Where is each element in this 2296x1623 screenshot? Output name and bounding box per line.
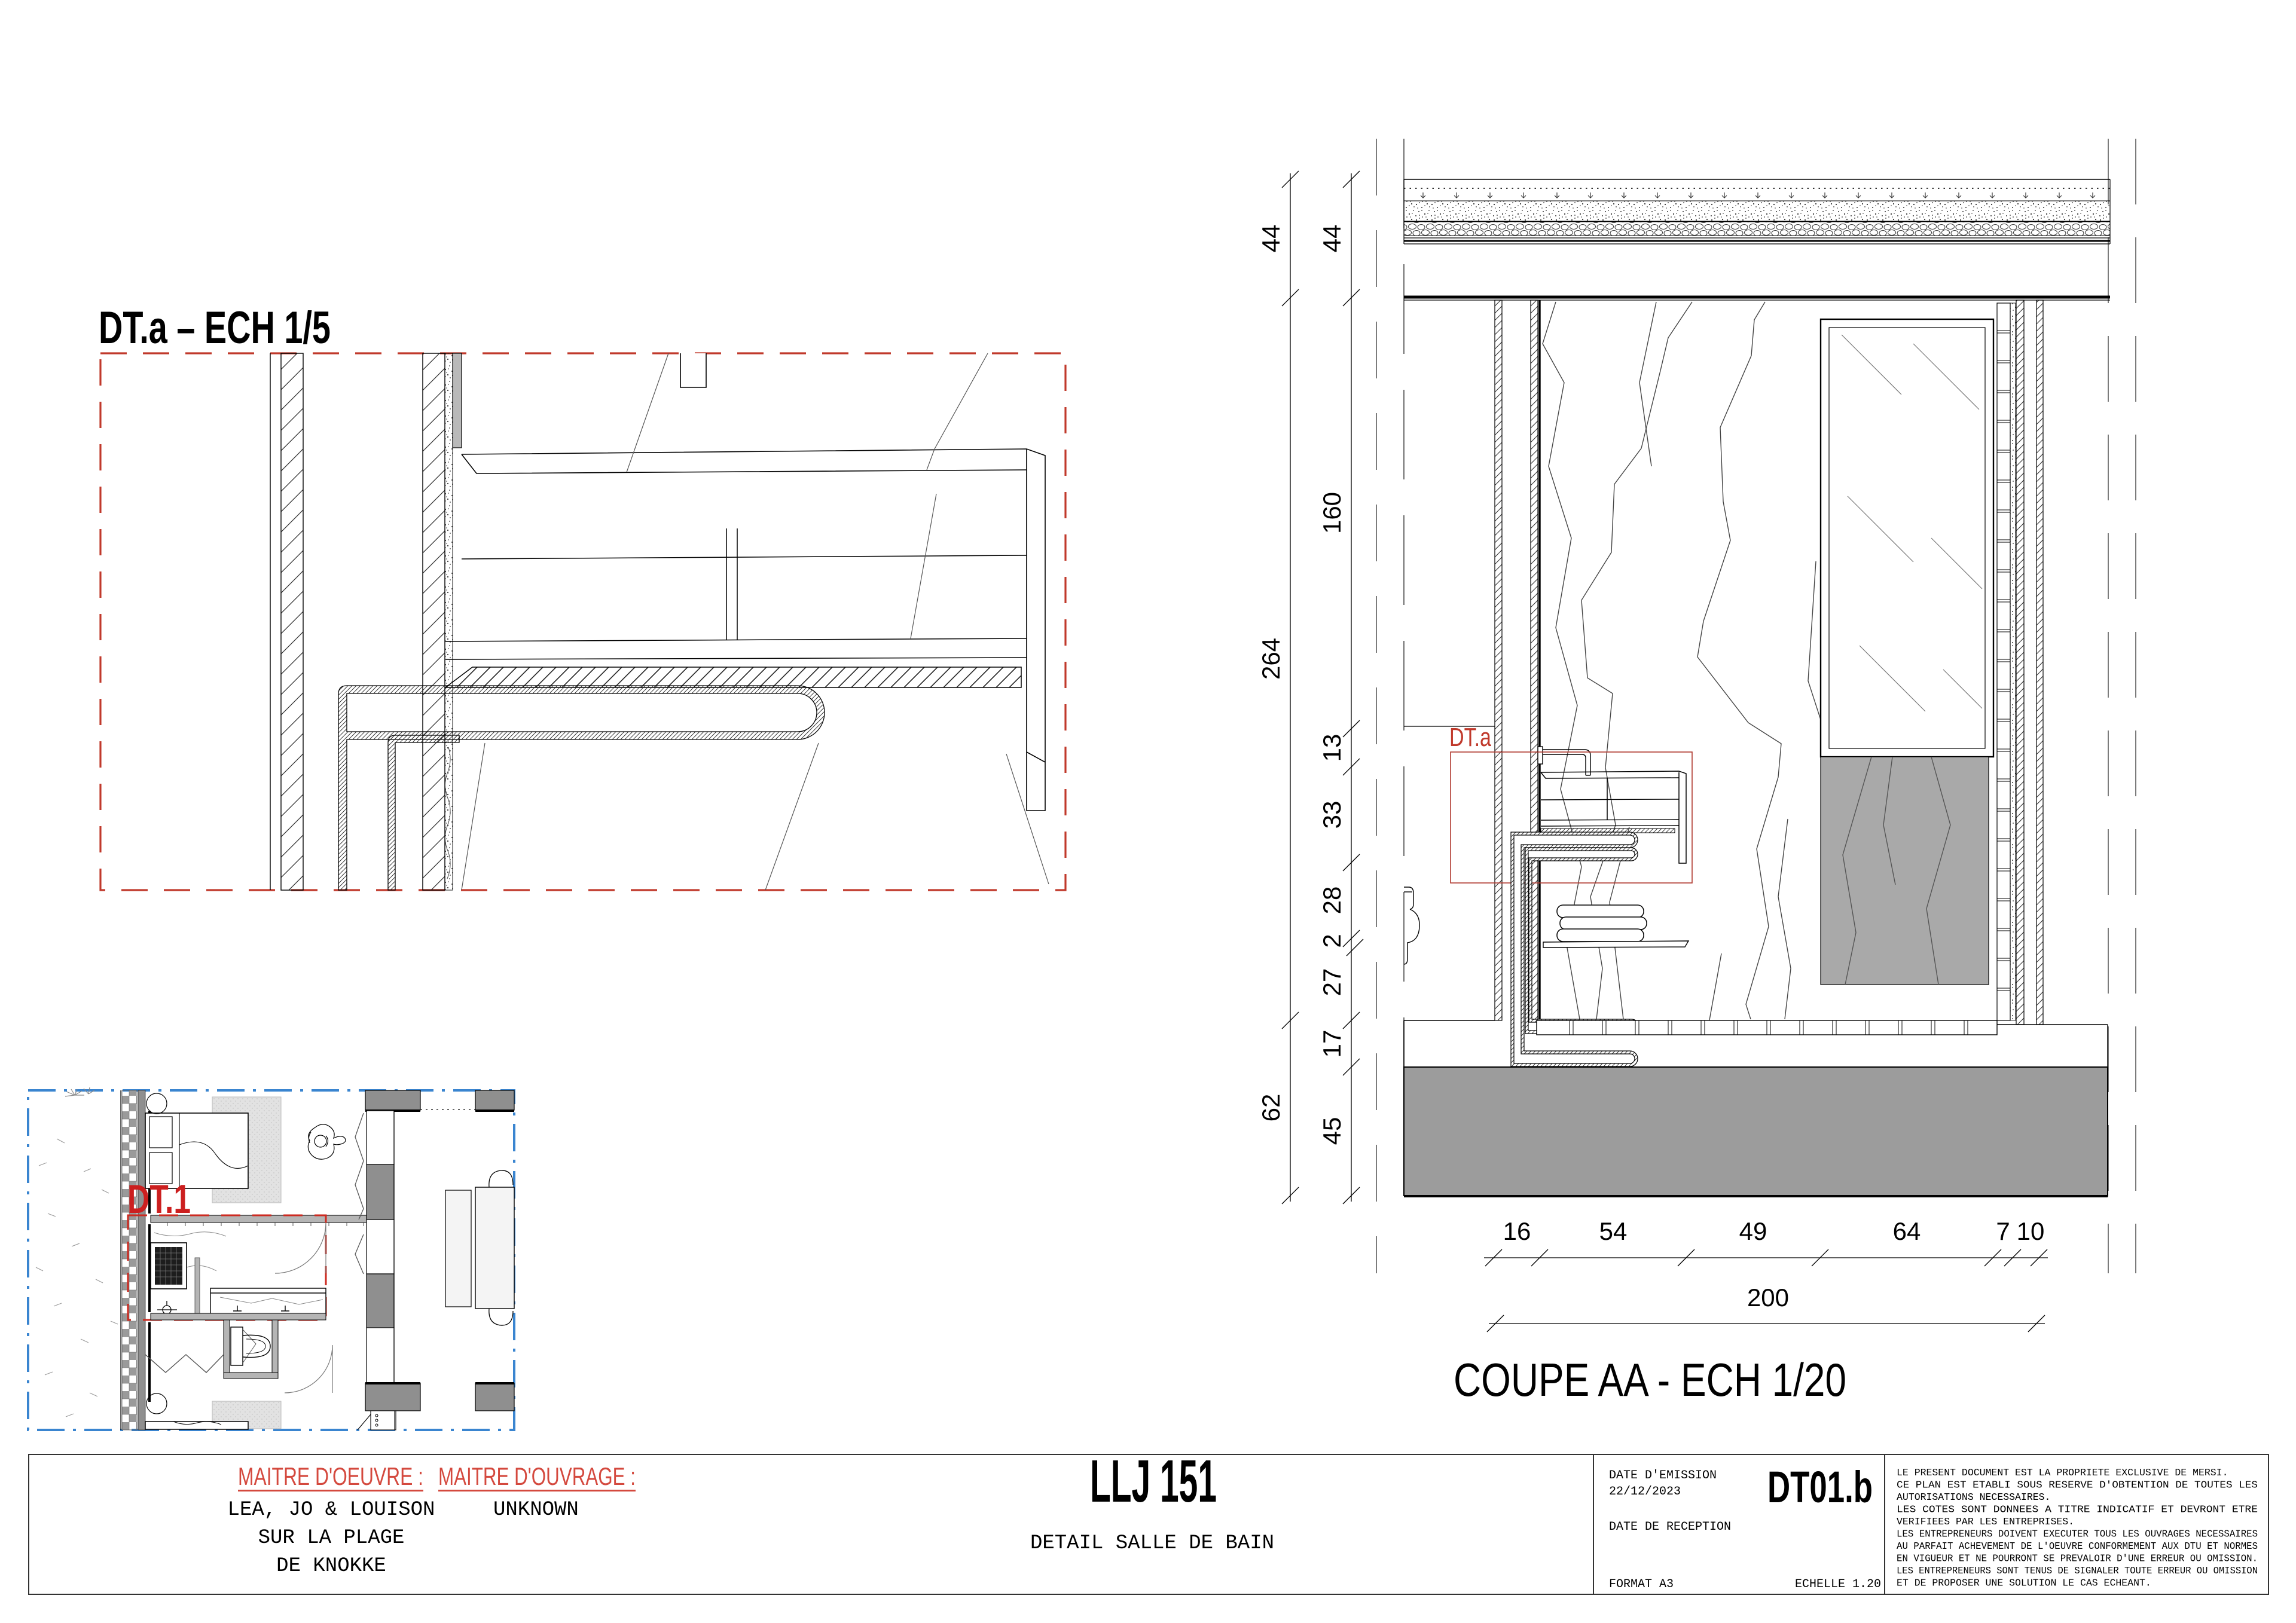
svg-text:DETAIL SALLE DE BAIN: DETAIL SALLE DE BAIN xyxy=(1030,1532,1274,1555)
svg-text:LES COTES SONT DONNEES A TITRE: LES COTES SONT DONNEES A TITRE INDICATIF… xyxy=(1897,1504,2258,1515)
svg-text:LES ENTREPRENEURS DOIVENT EXEC: LES ENTREPRENEURS DOIVENT EXECUTER TOUS … xyxy=(1897,1529,2258,1540)
svg-text:MAITRE D'OEUVRE :: MAITRE D'OEUVRE : xyxy=(238,1462,423,1490)
svg-text:LES ENTREPRENEURS SONT TENUS D: LES ENTREPRENEURS SONT TENUS DE SIGNALER… xyxy=(1897,1565,2258,1576)
svg-text:DT.a – ECH 1/5: DT.a – ECH 1/5 xyxy=(99,302,331,353)
svg-text:10: 10 xyxy=(2017,1217,2045,1245)
svg-text:EN VIGUEUR ET NE POURRONT SE P: EN VIGUEUR ET NE POURRONT SE PREVALOIR D… xyxy=(1897,1553,2258,1564)
svg-text:33: 33 xyxy=(1318,801,1346,829)
svg-text:AUTORISATIONS NECESSAIRES.: AUTORISATIONS NECESSAIRES. xyxy=(1897,1491,2050,1503)
svg-text:44: 44 xyxy=(1257,225,1285,253)
svg-text:COUPE AA - ECH 1/20: COUPE AA - ECH 1/20 xyxy=(1454,1353,1846,1406)
svg-text:17: 17 xyxy=(1318,1030,1346,1058)
svg-text:LE PRESENT DOCUMENT EST LA PRO: LE PRESENT DOCUMENT EST LA PROPRIETE EXC… xyxy=(1897,1467,2228,1478)
svg-text:FORMAT A3: FORMAT A3 xyxy=(1609,1578,1674,1591)
svg-text:7: 7 xyxy=(1996,1217,2010,1245)
svg-text:54: 54 xyxy=(1599,1217,1628,1245)
svg-text:AU PARFAIT ACHEVEMENT DE L'OEU: AU PARFAIT ACHEVEMENT DE L'OEUVRE CONFOR… xyxy=(1897,1541,2258,1552)
svg-text:160: 160 xyxy=(1318,492,1346,534)
svg-text:2: 2 xyxy=(1318,934,1346,947)
svg-text:VERIFIEES PAR LES ENTREPRISES.: VERIFIEES PAR LES ENTREPRISES. xyxy=(1897,1516,2074,1527)
svg-text:22/12/2023: 22/12/2023 xyxy=(1609,1485,1681,1499)
svg-text:44: 44 xyxy=(1318,225,1346,253)
svg-text:LLJ 151: LLJ 151 xyxy=(1090,1448,1217,1515)
svg-text:MAITRE D'OUVRAGE :: MAITRE D'OUVRAGE : xyxy=(438,1462,636,1490)
svg-text:ET DE PROPOSER UNE SOLUTION LE: ET DE PROPOSER UNE SOLUTION LE CAS ECHEA… xyxy=(1897,1578,2151,1589)
svg-text:16: 16 xyxy=(1503,1217,1531,1245)
svg-text:27: 27 xyxy=(1318,968,1346,997)
svg-text:CE PLAN EST ETABLI SOUS RESERV: CE PLAN EST ETABLI SOUS RESERVE D'OBTENT… xyxy=(1897,1480,2258,1491)
svg-text:DT01.b: DT01.b xyxy=(1767,1462,1873,1512)
svg-text:UNKNOWN: UNKNOWN xyxy=(493,1499,579,1521)
svg-text:ECHELLE 1.20: ECHELLE 1.20 xyxy=(1795,1578,1881,1591)
svg-text:DATE DE RECEPTION: DATE DE RECEPTION xyxy=(1609,1520,1731,1534)
svg-text:264: 264 xyxy=(1257,638,1285,680)
svg-text:13: 13 xyxy=(1318,734,1346,762)
svg-text:DATE D'EMISSION: DATE D'EMISSION xyxy=(1609,1469,1717,1483)
svg-text:DE KNOKKE: DE KNOKKE xyxy=(276,1555,386,1578)
svg-text:LEA, JO & LOUISON: LEA, JO & LOUISON xyxy=(228,1499,435,1521)
svg-text:64: 64 xyxy=(1893,1217,1921,1245)
svg-text:DT.a: DT.a xyxy=(1449,723,1491,752)
svg-text:62: 62 xyxy=(1257,1094,1285,1122)
svg-text:200: 200 xyxy=(1747,1283,1789,1312)
svg-text:49: 49 xyxy=(1739,1217,1767,1245)
svg-text:SUR LA PLAGE: SUR LA PLAGE xyxy=(258,1527,405,1549)
svg-text:28: 28 xyxy=(1318,887,1346,915)
svg-text:45: 45 xyxy=(1318,1117,1346,1145)
